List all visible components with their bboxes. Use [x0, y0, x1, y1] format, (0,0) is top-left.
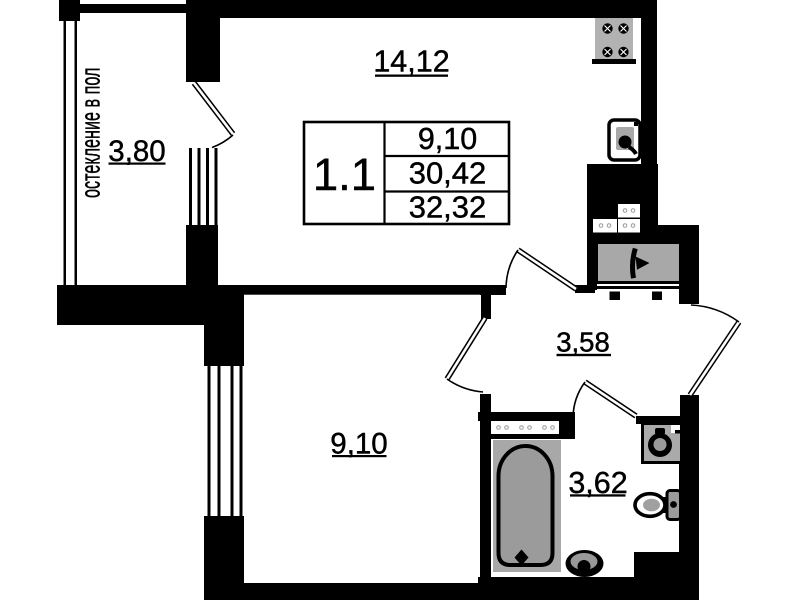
svg-text:3,58: 3,58 [556, 327, 610, 358]
svg-text:9,10: 9,10 [418, 122, 477, 156]
svg-text:остекление в пол: остекление в пол [75, 67, 105, 198]
svg-text:32,32: 32,32 [409, 190, 487, 225]
svg-text:30,42: 30,42 [409, 155, 487, 190]
svg-text:1.1: 1.1 [313, 149, 376, 200]
svg-text:14,12: 14,12 [373, 45, 449, 79]
